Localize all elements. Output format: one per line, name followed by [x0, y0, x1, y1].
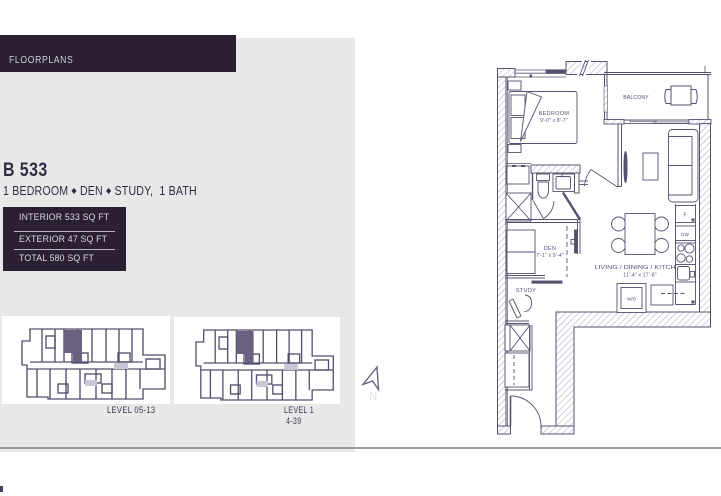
svg-text:N: N [369, 391, 377, 403]
svg-text:LIVING / DINING / KITCHEN: LIVING / DINING / KITCHEN [595, 265, 686, 271]
svg-text:W/D: W/D [627, 297, 637, 302]
svg-text:DEN: DEN [544, 246, 557, 252]
svg-text:F: F [683, 213, 686, 219]
svg-text:DW: DW [681, 232, 689, 237]
svg-text:11'-4" x 17'-8": 11'-4" x 17'-8" [623, 273, 656, 279]
svg-text:7'-1" x 5'-4": 7'-1" x 5'-4" [536, 253, 564, 259]
svg-text:STUDY: STUDY [516, 288, 536, 294]
svg-text:BEDROOM: BEDROOM [539, 111, 570, 117]
svg-text:9'-0" x 8'-7": 9'-0" x 8'-7" [540, 118, 568, 124]
svg-text:BALCONY: BALCONY [623, 95, 649, 101]
